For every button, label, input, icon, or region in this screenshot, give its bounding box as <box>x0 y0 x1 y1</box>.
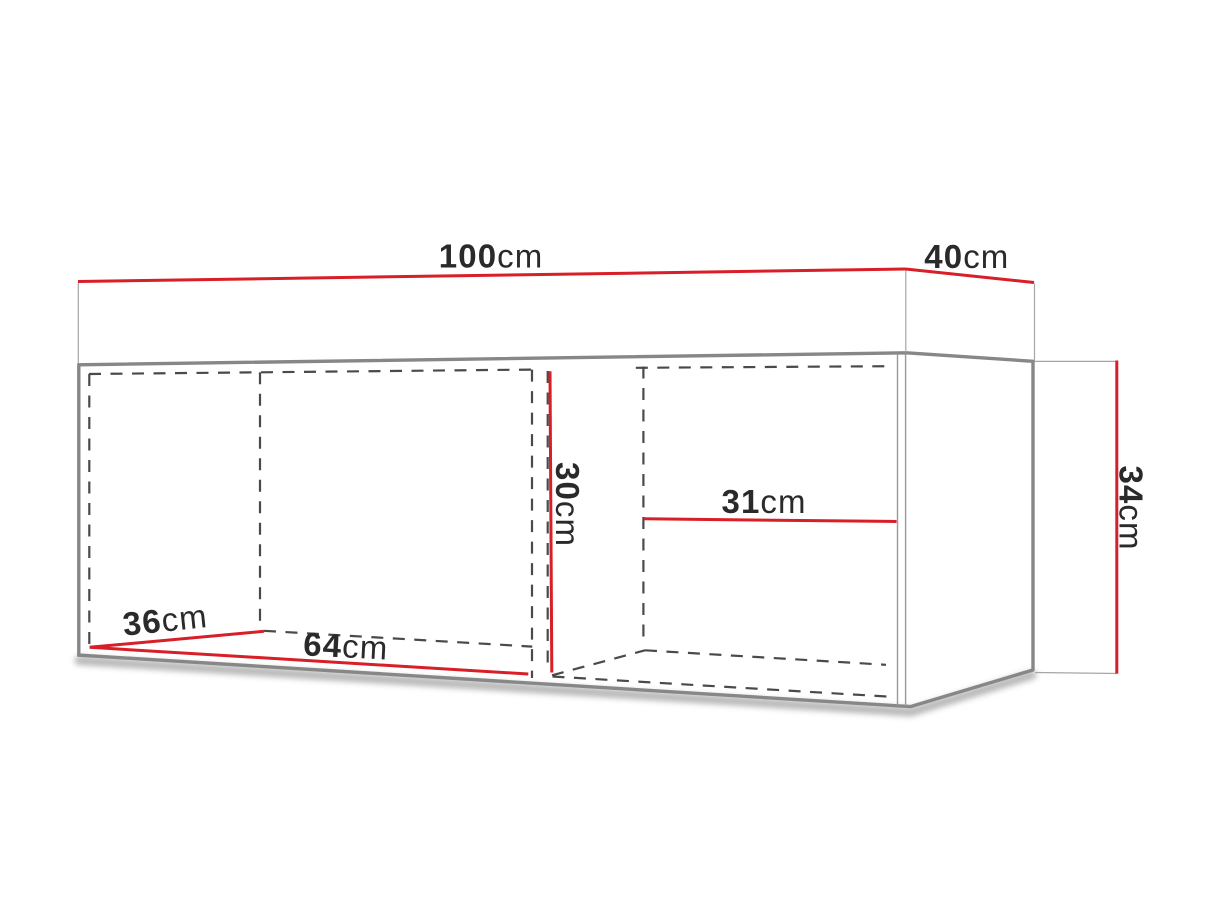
svg-text:40cm: 40cm <box>924 238 1009 275</box>
svg-text:100cm: 100cm <box>439 237 544 274</box>
svg-text:31cm: 31cm <box>722 483 807 520</box>
svg-text:64cm: 64cm <box>302 625 389 666</box>
svg-text:36cm: 36cm <box>121 597 210 643</box>
svg-text:30cm: 30cm <box>549 462 586 547</box>
svg-text:34cm: 34cm <box>1113 466 1150 551</box>
